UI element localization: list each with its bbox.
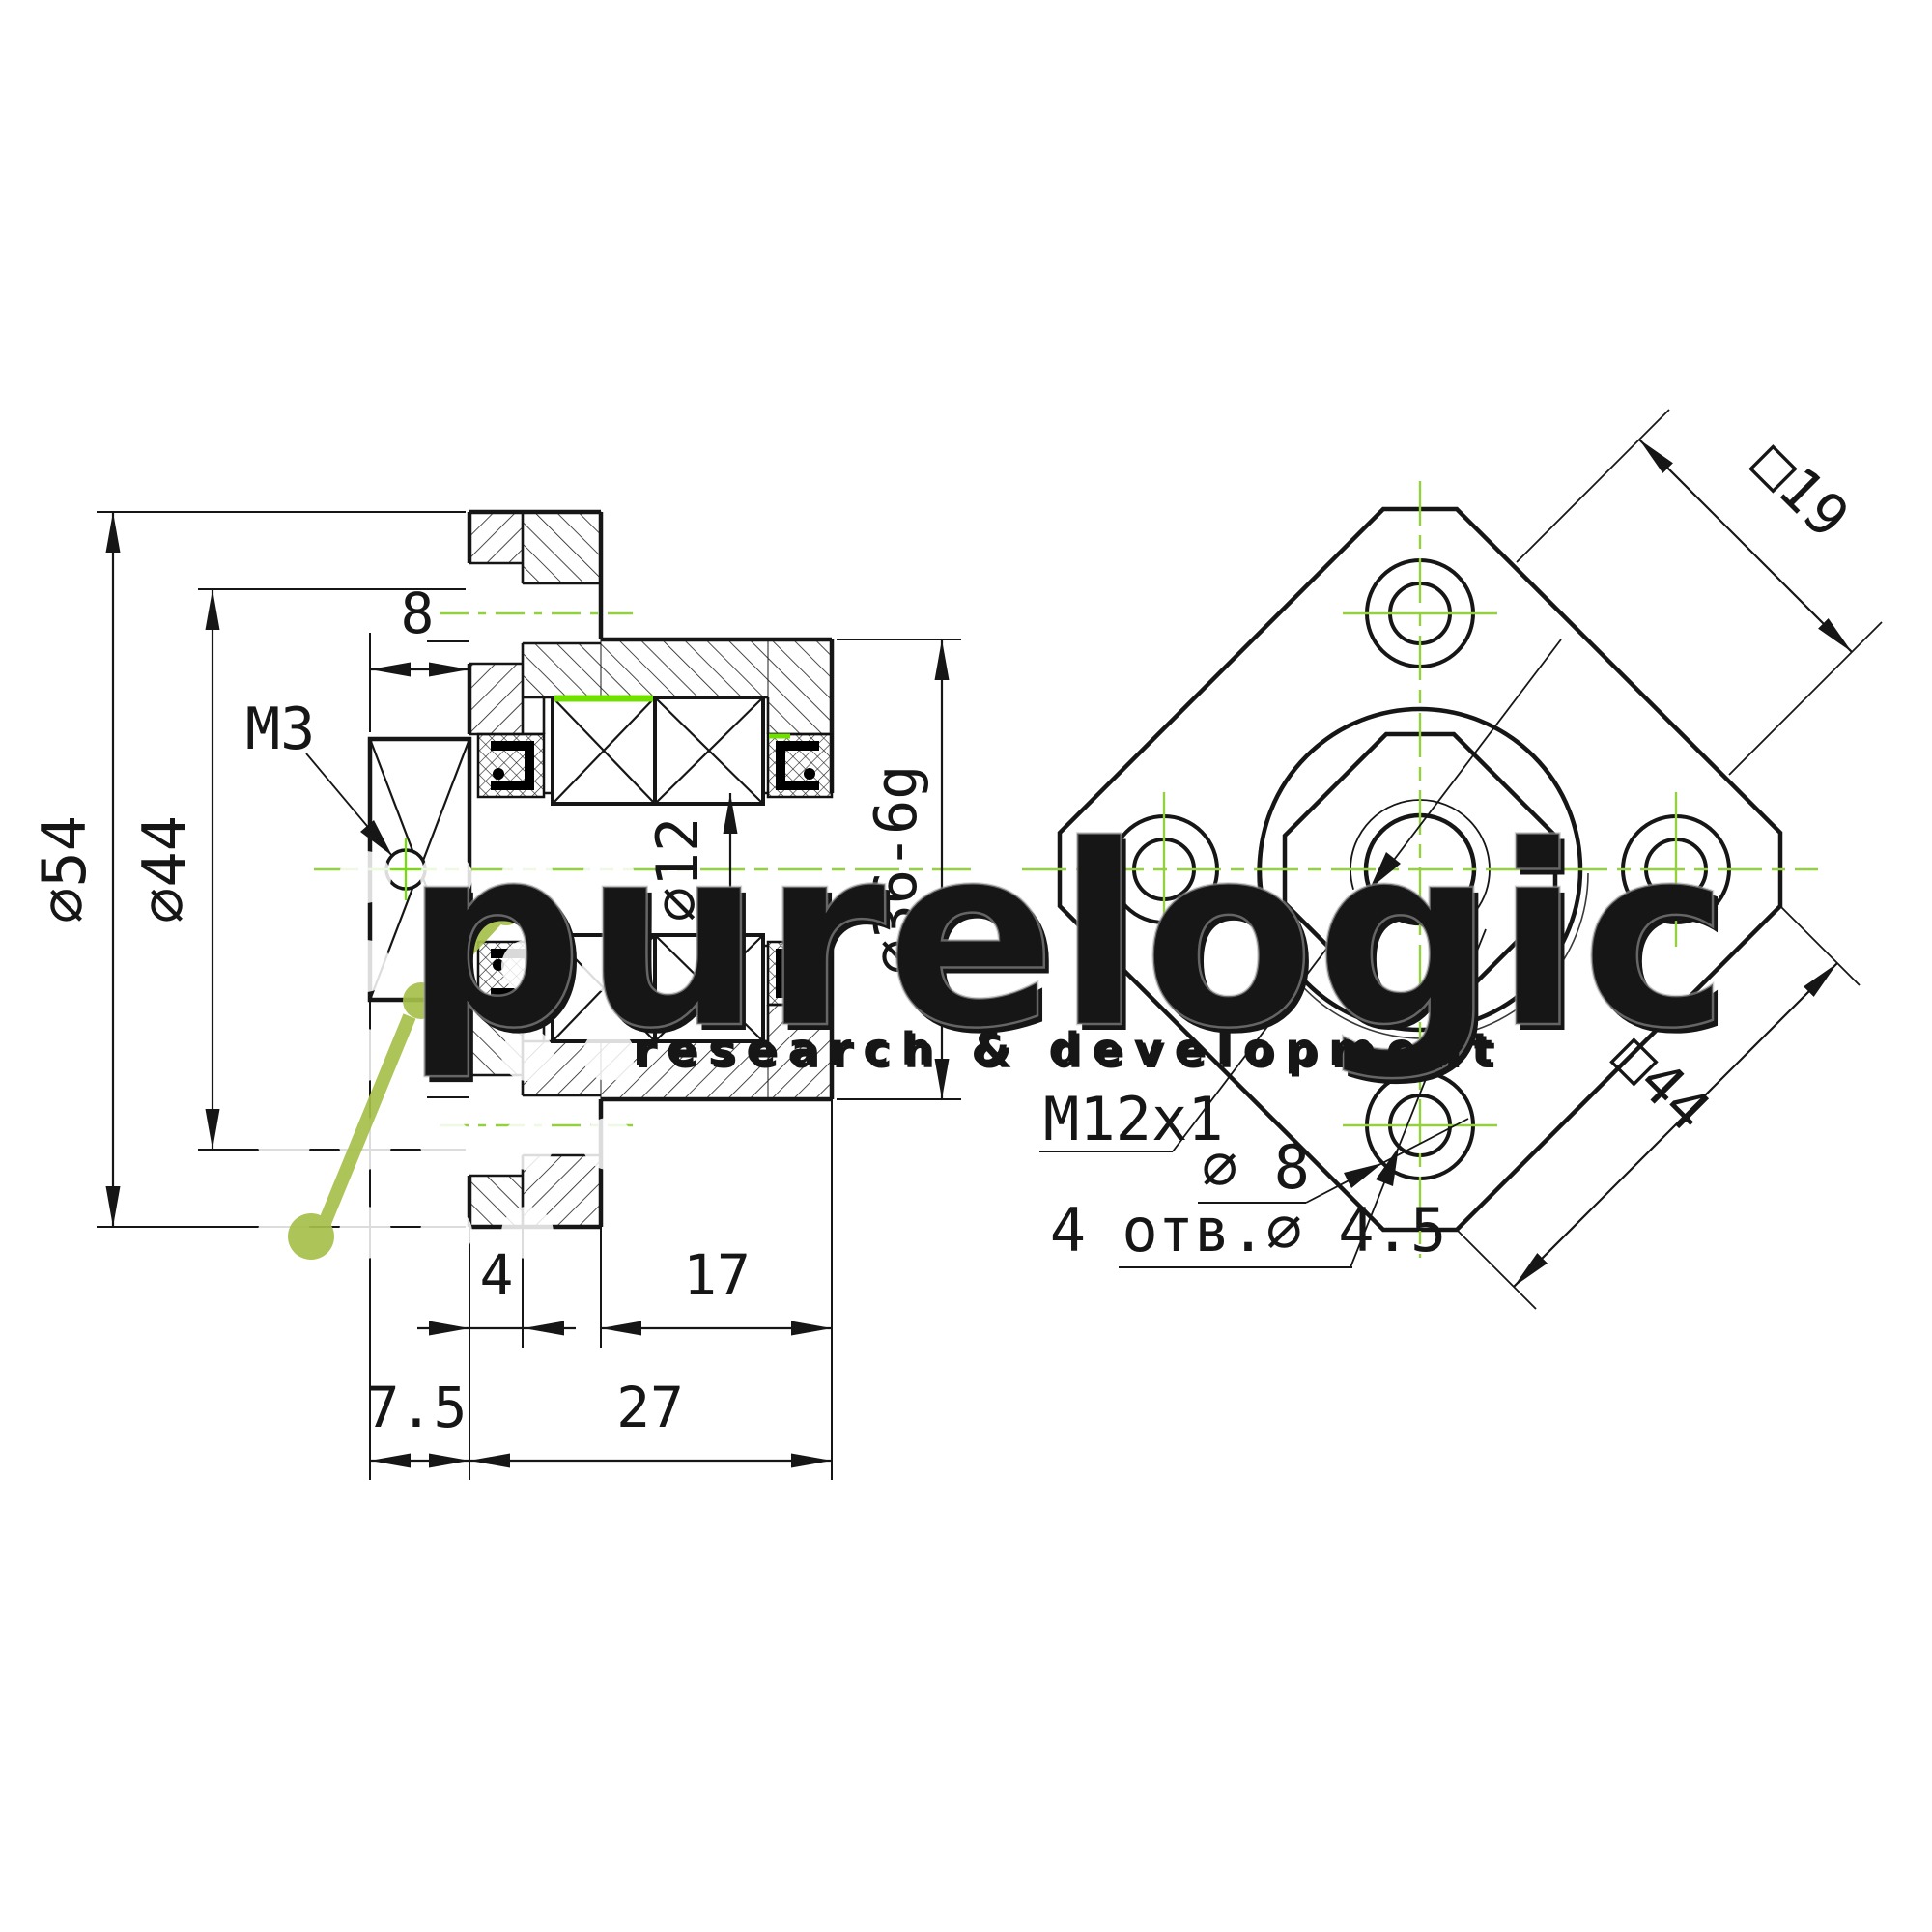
callout-phi8-label: ∅ 8	[1202, 1132, 1310, 1203]
dim-m3-label: M3	[245, 696, 315, 763]
dim-sq19-label: □19	[1740, 430, 1861, 552]
callout-holes-label: 4 отв.∅ 4.5	[1050, 1195, 1447, 1265]
drawing-canvas: ∅54 ∅44 8 M3 ∅12 ∅36-6g 4 17 7.5 27	[0, 0, 1932, 1932]
dim-27-label: 27	[616, 1375, 684, 1440]
dim-phi54-label: ∅54	[29, 815, 99, 923]
dim-17-label: 17	[683, 1242, 751, 1308]
dim-8-label: 8	[401, 581, 435, 646]
callout-m12-label: M12x1	[1043, 1084, 1224, 1154]
dim-phi44-label: ∅44	[129, 815, 200, 923]
technical-drawing-svg: ∅54 ∅44 8 M3 ∅12 ∅36-6g 4 17 7.5 27	[0, 0, 1932, 1932]
dim-4-label: 4	[480, 1242, 514, 1308]
watermark-tagline: research & development	[633, 1023, 1504, 1075]
dim-75-label: 7.5	[366, 1375, 468, 1440]
